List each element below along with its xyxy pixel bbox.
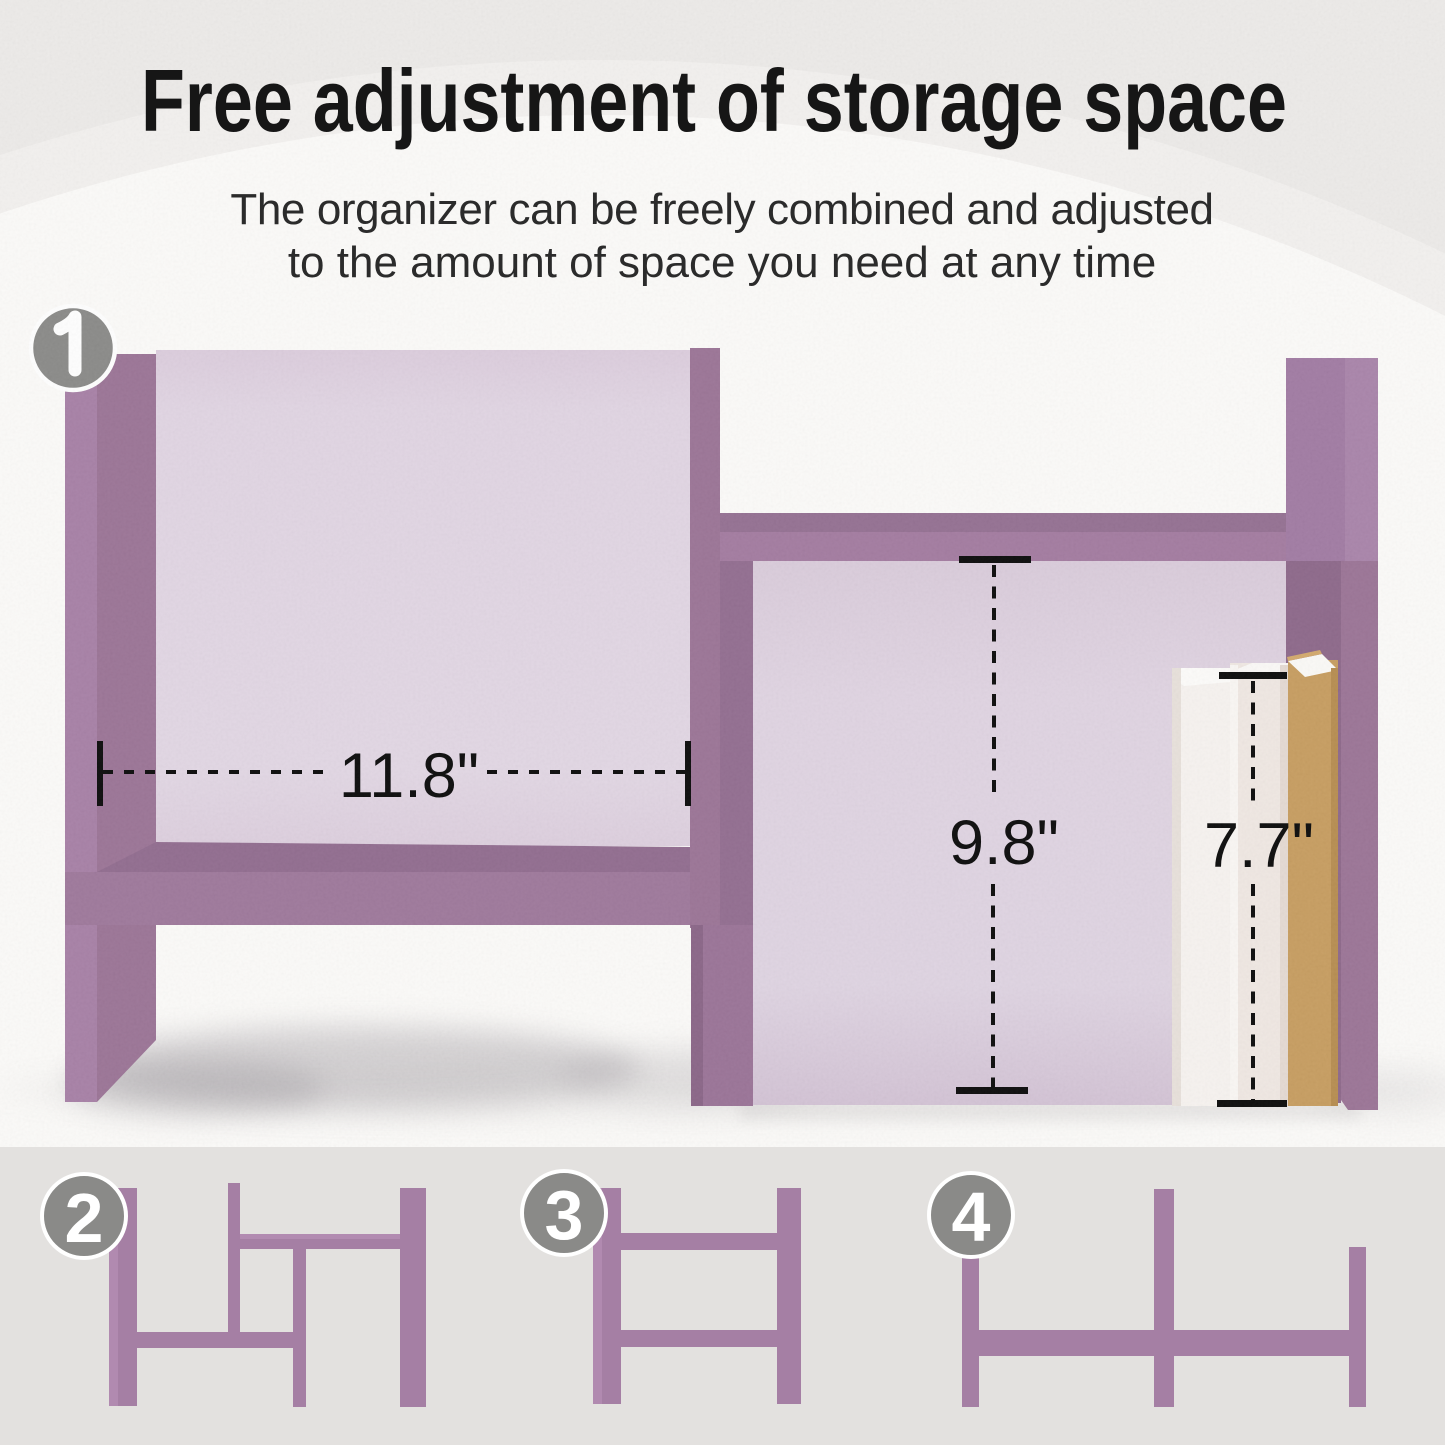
svg-text:3: 3: [545, 1176, 584, 1254]
svg-text:2: 2: [65, 1179, 104, 1257]
svg-text:to the amount of space you nee: to the amount of space you need at any t…: [288, 238, 1156, 287]
svg-text:The organizer can be freely co: The organizer can be freely combined and…: [230, 185, 1213, 234]
svg-text:4: 4: [952, 1178, 991, 1256]
svg-text:Free adjustment of storage spa: Free adjustment of storage space: [141, 52, 1287, 151]
